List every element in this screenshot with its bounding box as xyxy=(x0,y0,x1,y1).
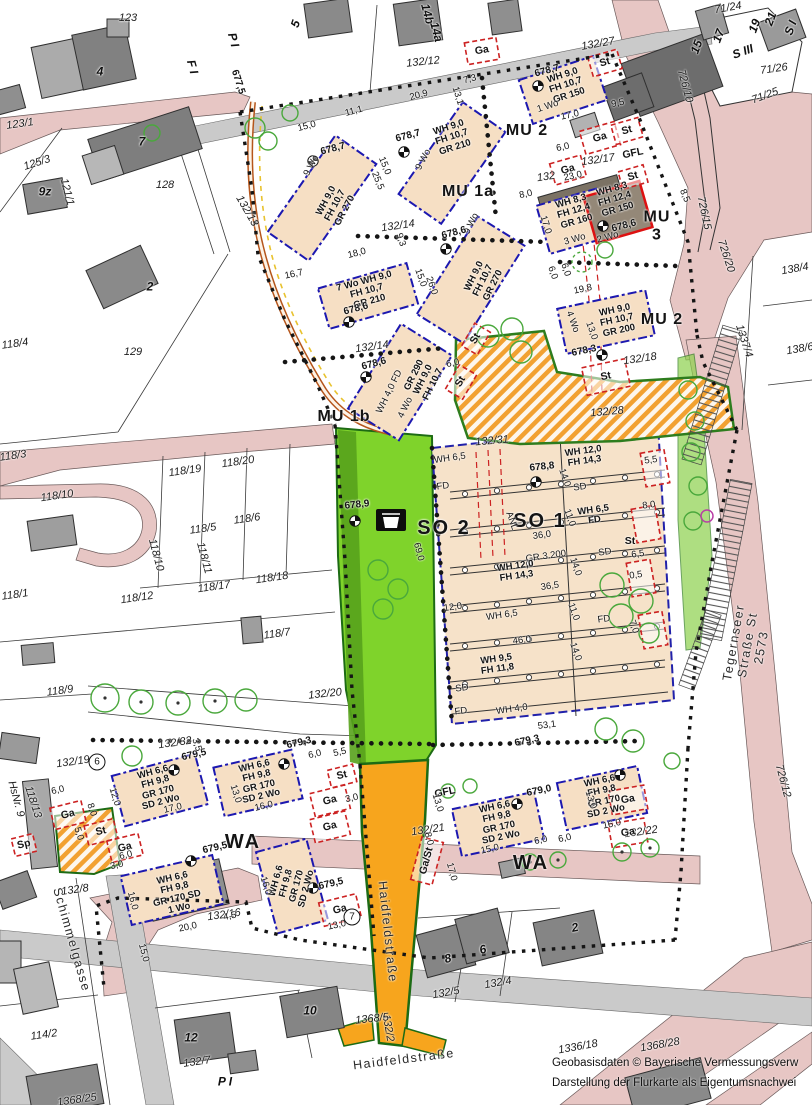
dimension-label: 46,0 xyxy=(512,635,532,648)
parcel-number: 128 xyxy=(156,179,174,191)
parcel-number: 132/14 xyxy=(354,339,389,356)
dimension-label: 9 Wo xyxy=(414,148,434,172)
dimension-label: 13,0 xyxy=(327,919,347,933)
parking-garage-label: GFL xyxy=(622,146,645,162)
building-regulation-annotation: WH 9,0 FH 10,7 GR 200 xyxy=(597,302,637,340)
circled-number: 6 xyxy=(89,754,106,771)
dimension-label: 6,0 xyxy=(558,262,572,278)
parcel-number: 726/10 xyxy=(675,68,695,104)
dimension-label: 8,0 xyxy=(421,831,435,846)
building-regulation-annotation: 7 Wo WH 9,0 FH 10,7 GR 210 xyxy=(335,270,398,315)
parcel-number: 118/9 xyxy=(46,683,74,699)
dimension-label: 6,0 xyxy=(557,833,572,846)
parcel-number: 132/32 xyxy=(157,735,192,752)
house-number: 6 xyxy=(478,943,488,957)
parcel-number: 1368/28 xyxy=(639,1036,680,1055)
dimension-label: 8,0 xyxy=(642,500,657,512)
elevation-label: 678,7 xyxy=(394,127,421,144)
dimension-label: 17,0 xyxy=(560,109,580,123)
dimension-label: 6,0 xyxy=(555,142,570,155)
dimension-label: 9 Wo xyxy=(462,212,481,236)
parcel-number: 132/21 xyxy=(410,822,445,839)
dimension-label: 14,0 xyxy=(556,468,572,489)
elevation-label: 678,6 xyxy=(610,217,637,234)
house-number: F I xyxy=(184,59,200,76)
street-haidfeldstrasse-south: Haidfeldstraße xyxy=(352,1047,455,1073)
dimension-label: 16,0 xyxy=(602,818,622,832)
parcel-number: 132/22 xyxy=(623,824,658,841)
dimension-label: 16,0 xyxy=(254,800,274,814)
building-regulation-annotation: WH 6,6 FH 9,8 GR 170 SD 2 Wo xyxy=(580,773,626,822)
street-tegernseer-strasse: Tegernseer Straße St 2573 xyxy=(721,603,775,687)
building-regulation-annotation: WH 8,3 FH 12,4 GR 150 xyxy=(594,180,635,219)
dimension-label: 4 Wo xyxy=(563,310,580,334)
building-regulation-annotation: WH 6,6 FH 9,8 GR 170 SD 2 Wo xyxy=(235,757,282,806)
dimension-label: 4,5 xyxy=(222,911,237,924)
dimension-label: 7,0 xyxy=(626,619,640,635)
dimension-label: 17,0 xyxy=(163,802,183,816)
parcel-number: 132/17 xyxy=(580,152,615,169)
dimension-label: 5,5 xyxy=(332,746,347,759)
building-regulation-annotation: WH 8,3 FH 12,4 GR 160 xyxy=(553,192,594,231)
dimension-label: 6,5 xyxy=(631,549,646,561)
dimension-label: 6,0 xyxy=(307,748,322,761)
parking-garage-label: Ga xyxy=(474,44,490,58)
building-regulation-annotation: WH 9,0 FH 10,7 GR 150 xyxy=(545,66,587,106)
zone-mu1a: MU 1a xyxy=(442,183,494,201)
dimension-label: 6,0 xyxy=(445,358,460,371)
dimension-label: 8,0 xyxy=(518,189,533,202)
parking-garage-label: St xyxy=(453,375,468,390)
parcel-number: 118/11 xyxy=(194,541,214,575)
dimension-label: 3 Wo xyxy=(563,232,587,248)
parcel-number: 118/13 xyxy=(22,785,44,820)
parcel-number: 125/3 xyxy=(22,153,52,173)
parcel-number: 71/26 xyxy=(760,61,789,77)
dimension-label: WH 4,0 xyxy=(496,703,529,718)
building-regulation-annotation: WH 9,0 FH 10,7 GR 270 xyxy=(314,184,358,229)
dimension-label: 13,0 xyxy=(582,790,598,811)
parking-garage-label: Ga xyxy=(592,131,609,146)
elevation-label: 679,5 xyxy=(202,840,229,856)
parcel-number: 132/13 xyxy=(233,193,260,228)
parcel-number: 121/1 xyxy=(58,177,77,207)
parcel-number: 132/16 xyxy=(206,907,241,924)
dimension-label: 3,0 xyxy=(109,859,124,872)
dimension-label: 3,5 xyxy=(189,737,203,753)
elevation-label: 678,8 xyxy=(529,460,555,474)
parcel-number: 118/3 xyxy=(0,448,27,464)
dimension-label: 20,9 xyxy=(409,89,430,104)
street-haidfeldstrasse-new: Haidfeldstraße xyxy=(375,880,399,983)
parcel-number: 118/7 xyxy=(263,626,291,642)
building-regulation-annotation: WH 6,5 FD xyxy=(577,503,611,528)
dimension-label: 23,0 xyxy=(563,170,583,184)
dimension-label: 11,0 xyxy=(561,508,577,528)
dimension-label: SD xyxy=(573,482,588,494)
street-schimmelgasse: Schimmelgasse xyxy=(50,886,93,993)
elevation-label: 678,6 xyxy=(360,355,387,372)
attribution-line-1: Geobasisdaten © Bayerische Vermessungsve… xyxy=(552,1057,798,1069)
dimension-label: 6,0 xyxy=(50,784,65,797)
parcel-number: 132/14 xyxy=(380,218,415,235)
house-number: 17 xyxy=(711,27,728,44)
elevation-label: 678,7 xyxy=(319,140,346,157)
dimension-label: 26,0 xyxy=(423,276,439,297)
dimension-label: 9 Wo xyxy=(302,154,322,178)
parcel-number: 1337/4 xyxy=(733,323,755,359)
parcel-number: 123/1 xyxy=(6,116,35,132)
development-plan-map: Geobasisdaten © Bayerische Vermessungsve… xyxy=(0,0,812,1105)
dimension-label: 18,0 xyxy=(347,247,367,262)
dimension-label: 9,3 xyxy=(393,232,407,248)
parcel-number: 118/6 xyxy=(233,511,261,527)
zone-wa-east: WA xyxy=(513,852,549,874)
dimension-label: 13,0 xyxy=(227,784,243,805)
parcel-number: 1368/25 xyxy=(56,1091,97,1105)
dimension-label: 15,0 xyxy=(297,120,318,135)
house-number: 8 xyxy=(443,952,453,966)
parcel-number: 132/12 xyxy=(406,54,441,70)
dimension-label: 15,0 xyxy=(136,943,151,964)
house-number: 10 xyxy=(303,1004,316,1017)
parcel-number: 132 xyxy=(536,170,556,185)
house-number: S I xyxy=(782,19,799,37)
dimension-label: 0,5 xyxy=(629,570,644,582)
parcel-number: 132/7 xyxy=(183,1054,212,1070)
parcel-number: 132/31 xyxy=(475,434,510,449)
dimension-label: 2 Wo xyxy=(596,230,620,246)
building-regulation-annotation: WH 12,0 FH 14,3 xyxy=(564,444,604,470)
parcel-number: 123 xyxy=(119,12,137,24)
elevation-label: 679,0 xyxy=(526,783,553,799)
dimension-label: 19,8 xyxy=(573,283,593,297)
parcel-number: 132/20 xyxy=(308,686,343,702)
dimension-label: 7,3 xyxy=(462,73,477,87)
zone-wa-west: WA xyxy=(225,831,261,853)
parking-garage-label: St xyxy=(600,370,613,383)
dimension-label: 13,0 xyxy=(583,321,599,342)
dimension-label: 4 Wo xyxy=(396,396,415,420)
house-number: 7 xyxy=(139,135,146,148)
house-number: 2 xyxy=(570,921,579,935)
dimension-label: 20,0 xyxy=(178,921,198,935)
parcel-number: 726/12 xyxy=(773,763,793,799)
parking-garage-label: Ga xyxy=(620,826,636,840)
house-number: P I xyxy=(218,1075,232,1088)
house-number: S III xyxy=(731,42,756,62)
parcel-number: 132/19 xyxy=(55,754,90,771)
dimension-label: 17,0 xyxy=(537,215,553,236)
parcel-number: 118/12 xyxy=(120,590,154,607)
parcel-number: 138/6 xyxy=(785,341,812,358)
parcel-number: 114/2 xyxy=(30,1027,58,1043)
building-regulation-annotation: WH 9,5 FH 11,8 xyxy=(479,652,515,677)
elevation-label: 678,6 xyxy=(342,300,369,317)
parking-garage-label: St xyxy=(598,56,611,70)
dimension-label: FD xyxy=(597,614,611,626)
dimension-label: WH 6,5 xyxy=(434,452,467,467)
house-number: 2 xyxy=(147,280,154,293)
dimension-label: 53,1 xyxy=(537,720,557,733)
house-number: 19 xyxy=(747,17,764,34)
zone-mu2-north: MU 2 xyxy=(506,122,548,140)
parcel-number: 726/15 xyxy=(695,195,714,230)
dimension-label: 11,1 xyxy=(344,105,364,120)
dimension-label: ANL xyxy=(503,511,519,532)
parcel-number: 129 xyxy=(124,346,142,358)
parking-garage-label: St xyxy=(626,170,639,184)
dimension-label: FD xyxy=(436,481,450,493)
elevation-label: 679,3 xyxy=(286,735,313,751)
dimension-label: 12,0 xyxy=(443,602,463,615)
parking-garage-label: Ga xyxy=(322,794,338,809)
dimension-label: 15,0 xyxy=(480,843,500,857)
dimension-label: GR 3.200 xyxy=(525,549,567,565)
parking-garage-label: Ga xyxy=(332,903,348,918)
dimension-label: 69,0 xyxy=(411,542,426,563)
dimension-label: 16,7 xyxy=(284,268,304,282)
house-number: P I xyxy=(225,31,241,48)
parcel-number: 132/5 xyxy=(431,985,460,1002)
parcel-number: 132/28 xyxy=(590,405,625,420)
zone-so2: SO 2 xyxy=(417,517,471,539)
parcel-number: 132/4 xyxy=(483,975,512,992)
dimension-label: 15,0 xyxy=(376,155,393,176)
house-number: 15 xyxy=(689,38,706,55)
parking-garage-label: St xyxy=(620,124,633,138)
parcel-number: 132/27 xyxy=(580,35,615,53)
parking-garage-label: St xyxy=(336,769,349,783)
dimension-label: 17,0 xyxy=(444,862,459,883)
dimension-label: WH 4,0 FD xyxy=(375,369,405,416)
parking-garage-label: St xyxy=(625,536,636,548)
parking-garage-label: Ga xyxy=(322,820,338,835)
house-number: 4 xyxy=(97,65,104,78)
dimension-label: 12,0 xyxy=(106,787,122,808)
building-regulation-annotation: GR 290 WH 9,0 FH 10,7 xyxy=(403,358,446,402)
dimension-label: 16,0 xyxy=(125,891,140,912)
zone-mu1b: MU 1b xyxy=(318,408,371,426)
elevation-label: 678,9 xyxy=(344,498,370,512)
elevation-label: 679,5 xyxy=(318,876,345,892)
parking-garage-label: Ga xyxy=(560,163,577,178)
parking-garage-label: Ga xyxy=(117,841,133,856)
elevation-label: 679,3 xyxy=(514,733,541,749)
parking-garage-label: Ga/St xyxy=(418,846,436,875)
parcel-number: 118/1 xyxy=(1,587,29,603)
dimension-label: 8,5 xyxy=(677,188,692,204)
parking-garage-label: St xyxy=(468,332,483,347)
parking-garage-label: GFL xyxy=(434,785,457,801)
dimension-label: SD xyxy=(598,547,613,559)
parcel-number: 118/20 xyxy=(221,454,255,471)
attribution-line-2: Darstellung der Flurkarte als Eigentumsn… xyxy=(552,1077,796,1089)
parcel-number: 132/18 xyxy=(622,351,657,368)
elevation-label: 679,5 xyxy=(181,747,208,763)
parking-garage-label: Ga xyxy=(620,793,636,807)
building-regulation-annotation: WH 6,6 FH 9,8 GR 170 SD 2 Wo xyxy=(475,799,521,848)
house-number: 9z xyxy=(39,185,52,198)
dimension-label: 13,1 xyxy=(449,86,465,107)
dimension-label: 36,5 xyxy=(540,581,560,594)
dimension-label: WH 6,5 xyxy=(486,609,519,624)
dimension-label: 14,0 xyxy=(567,642,583,663)
dimension-label: 6,0 xyxy=(545,265,559,281)
dimension-label: 36,0 xyxy=(532,530,552,543)
house-number: 14a xyxy=(427,21,445,44)
house-number: 5 xyxy=(289,19,304,30)
parking-garage-label: Ga xyxy=(60,808,76,823)
building-regulation-annotation: WH 6,6 FH 9,8 GR 170 SD 2 Wo xyxy=(133,763,181,813)
dimension-label: 25,5 xyxy=(369,170,386,191)
parking-garage-label: Sp xyxy=(16,838,32,852)
dimension-label: 6,0 xyxy=(533,835,548,848)
building-regulation-annotation: WH 12,0 FH 14,3 xyxy=(496,559,536,585)
parcel-number: 1336/18 xyxy=(557,1038,598,1057)
parcel-number: 118/19 xyxy=(168,463,202,480)
elevation-label: 678,3 xyxy=(571,343,598,359)
building-regulation-annotation: WH 9,0 FH 10,7 GR 270 xyxy=(463,259,506,303)
zone-mu3: MU 3 xyxy=(644,208,671,243)
dimension-label: 13,0 xyxy=(429,793,445,814)
building-regulation-annotation: WH 6,6 FH 9,8 GR 170 SD 1 Wo xyxy=(148,868,205,920)
elevation-label: 678,7 xyxy=(533,62,560,79)
dimension-label: 11,0 xyxy=(565,602,581,622)
dimension-label: 14,0 xyxy=(567,557,583,578)
dimension-label: FD xyxy=(454,706,468,718)
parcel-number: 118/5 xyxy=(189,521,217,537)
dimension-label: 8,0 xyxy=(84,802,98,818)
zone-mu2-east: MU 2 xyxy=(641,311,683,329)
dimension-label: 5,0 xyxy=(71,826,85,842)
house-number: 14b xyxy=(418,2,436,25)
building-regulation-annotation: WH 6,6 FH 9,8 GR 170 SD 2 Wo xyxy=(267,861,317,909)
dimension-label: 6,0 xyxy=(118,849,133,862)
dimension-label: 3,0 xyxy=(344,792,359,805)
parcel-number: 118/18 xyxy=(255,570,289,587)
dimension-label: 9,5 xyxy=(610,98,625,111)
dimension-label: 16,0 xyxy=(257,876,273,897)
parcel-number: 71/25 xyxy=(750,86,780,107)
dimension-label: SD xyxy=(455,683,470,695)
dimension-label: 5,5 xyxy=(644,455,659,467)
label-hsnr-9: HsNr. 9 xyxy=(5,780,26,819)
circled-number: 7 xyxy=(344,909,361,926)
parcel-number: 726/20 xyxy=(715,238,737,274)
house-number: 12 xyxy=(184,1031,197,1044)
elevation-label: 678,6 xyxy=(440,224,467,241)
parcel-number: 118/4 xyxy=(1,336,29,352)
parcel-number: 118/17 xyxy=(197,579,231,596)
parcel-number: 1368/5 xyxy=(355,1011,390,1027)
parking-garage-label: St xyxy=(95,825,108,839)
elevation-label: 677,5 xyxy=(229,68,247,95)
building-regulation-annotation: WH 9,0 FH 10,7 GR 210 xyxy=(431,118,473,158)
dimension-label: 1 Wo xyxy=(536,99,560,116)
house-number: 21 xyxy=(763,10,780,27)
parcel-number: 132/8 xyxy=(61,882,90,898)
parcel-number: 118/10 xyxy=(40,488,74,505)
parcel-number: 71/24 xyxy=(713,0,742,16)
zone-so1: SO 1 xyxy=(513,510,567,532)
label-layer: Geobasisdaten © Bayerische Vermessungsve… xyxy=(0,0,812,1105)
parcel-number: 138/4 xyxy=(780,261,809,278)
parcel-number: 132/2 xyxy=(380,1013,397,1042)
parcel-number: 118/10 xyxy=(146,538,166,573)
dimension-label: 15,0 xyxy=(412,268,428,289)
